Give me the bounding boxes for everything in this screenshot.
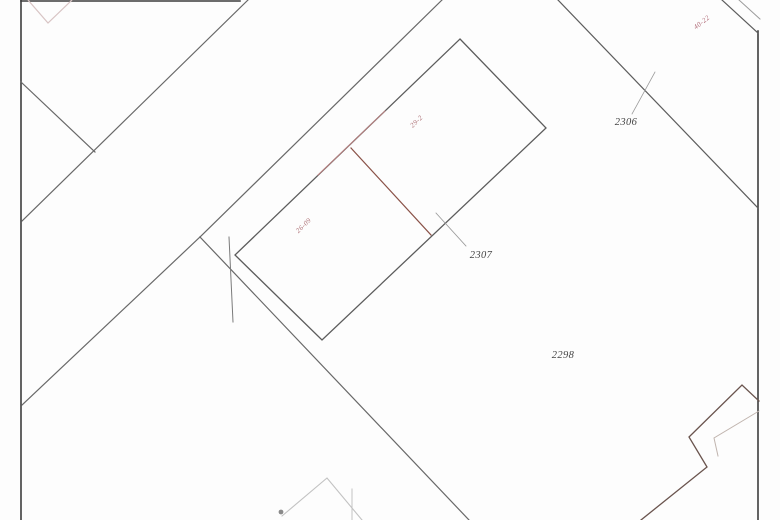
- bottom-building-outline: [282, 478, 362, 520]
- faint-v-line: [28, 0, 72, 23]
- building-divider-line: [351, 148, 431, 235]
- boundary-southeast-line: [200, 237, 469, 520]
- parcel-west-boundary-line: [200, 0, 442, 237]
- topright-strip-inner-line: [739, 0, 760, 19]
- survey-mark-dot: [279, 510, 284, 515]
- red-edge-segment: [318, 111, 385, 175]
- boundary-to-left-border: [22, 237, 200, 405]
- building-outline: [235, 39, 546, 340]
- parcel-label-2307: 2307: [470, 250, 493, 261]
- northwest-diagonal-boundary: [22, 0, 248, 221]
- northeast-diagonal-boundary: [558, 0, 758, 208]
- parcel-label-2306: 2306: [615, 117, 638, 128]
- leader-line-2306: [632, 72, 655, 114]
- southeast-zigzag-boundary: [641, 385, 759, 520]
- boundary-stub-line: [229, 237, 233, 322]
- west-spur-boundary-line: [21, 82, 95, 152]
- dimension-label-29-2: 29-2: [409, 114, 425, 130]
- cadastral-map: 23062307229829-226-0940-22: [0, 0, 780, 520]
- topright-strip-outer-line: [722, 0, 758, 33]
- southeast-zigzag-inner-line: [714, 411, 759, 456]
- dimension-label-40-22: 40-22: [692, 14, 711, 32]
- map-canvas: 23062307229829-226-0940-22: [0, 0, 780, 520]
- dimension-label-26-09: 26-09: [294, 216, 313, 235]
- parcel-label-2298: 2298: [552, 350, 575, 361]
